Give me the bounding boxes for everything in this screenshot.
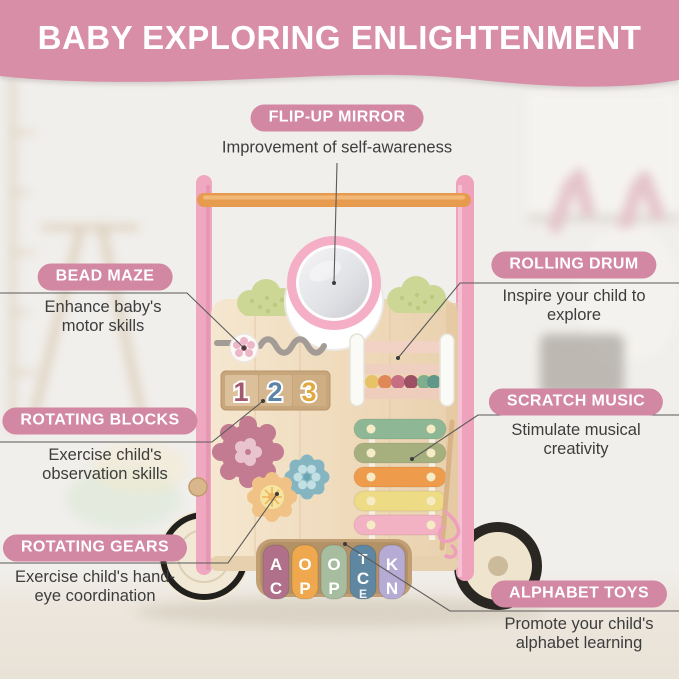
infographic-root: { "header": { "title": "BABY EXPLORING E… [0,0,679,679]
number-blocks: 1 2 3 [221,371,330,410]
desc-bead-maze: Enhance baby's motor skills [28,298,178,336]
page-title: BABY EXPLORING ENLIGHTENMENT [0,19,679,57]
desc-rolling-drum: Inspire your child to explore [499,287,649,325]
pill-bead-maze: BEAD MAZE [38,264,173,291]
flip-up-mirror [285,236,383,350]
pill-flip-up-mirror: FLIP-UP MIRROR [251,105,424,132]
digit-2: 2 [267,377,282,407]
pill-rotating-gears: ROTATING GEARS [3,535,187,562]
letter: P [328,579,339,598]
cloud-right [387,276,446,313]
axle-knob [189,478,207,496]
desc-alphabet-toys: Promote your child's alphabet learning [489,615,669,653]
digit-3: 3 [301,377,316,407]
letter: P [299,579,310,598]
push-handle [197,193,471,207]
letter: E [359,587,367,601]
desc-rotating-blocks: Exercise child's observation skills [25,446,185,484]
digit-1: 1 [233,377,248,407]
letter: O [298,555,311,574]
gear-orange [247,472,297,522]
header-banner: BABY EXPLORING ENLIGHTENMENT [0,0,679,96]
letter: C [270,579,282,598]
letter: C [357,569,369,588]
alphabet-wheels: A C O P O P T C E K N [256,539,412,601]
rolling-drum [350,334,454,406]
pill-alphabet-toys: ALPHABET TOYS [491,581,667,608]
pill-scratch-music: SCRATCH MUSIC [489,389,663,416]
desc-scratch-music: Stimulate musical creativity [501,421,651,459]
desc-flip-up-mirror: Improvement of self-awareness [177,138,497,157]
pill-rolling-drum: ROLLING DRUM [491,252,656,279]
letter: N [386,579,398,598]
letter: A [270,555,282,574]
letter: O [327,555,340,574]
desc-rotating-gears: Exercise child's hand-eye coordination [3,568,188,606]
pill-rotating-blocks: ROTATING BLOCKS [2,408,197,435]
